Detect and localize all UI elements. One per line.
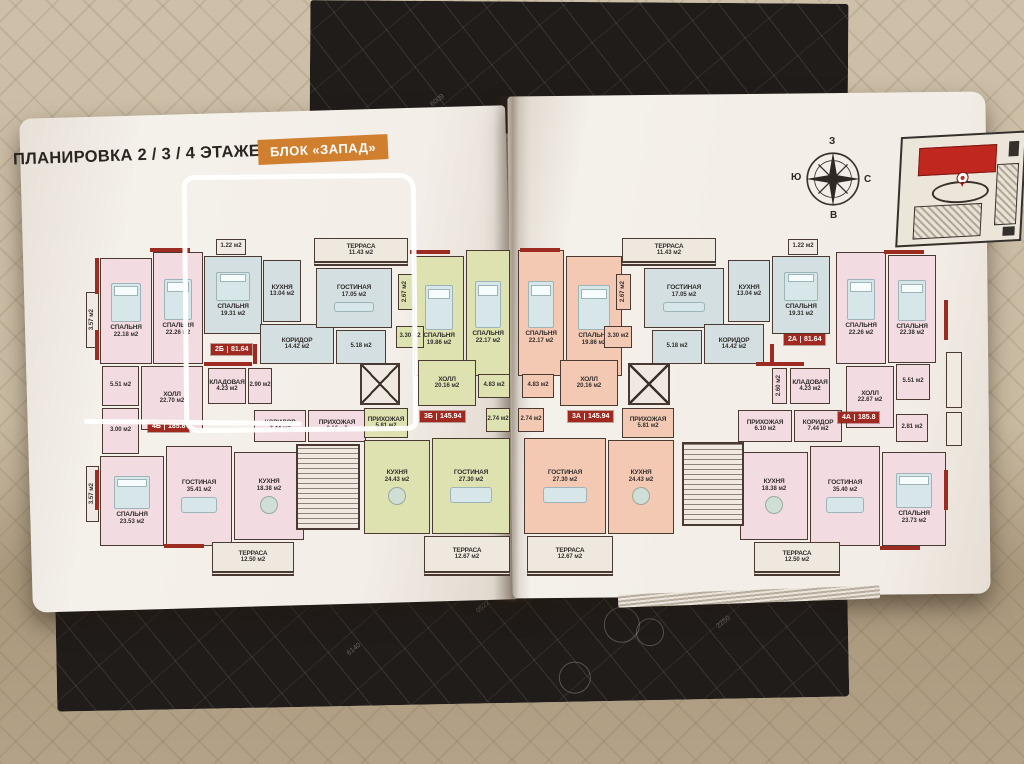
sofa-icon [181, 497, 216, 513]
room-area: 2.67 м2 [620, 281, 627, 302]
room-label: ГОСТИНАЯ27.30 м2 [454, 469, 488, 484]
plan-area: 2.74 м2 [518, 408, 544, 432]
plan-area: 2.67 м2 [616, 274, 631, 310]
plan-area: 2.74 м2 [486, 408, 510, 432]
compass-rose: З Ю С В [798, 136, 868, 226]
room-прихожая: ПРИХОЖАЯ6.10 м2 [738, 410, 792, 442]
room-label: 3.00 м2 [110, 427, 131, 434]
room-area: 3.30 м2 [607, 333, 628, 340]
room-спальня: СПАЛЬНЯ19.86 м2 [414, 256, 464, 376]
room-area: 35.40 м2 [828, 487, 862, 494]
room-name: ГОСТИНАЯ [667, 284, 701, 292]
room-гостиная: ГОСТИНАЯ17.05 м2 [644, 268, 724, 328]
room-label: КУХНЯ24.43 м2 [629, 469, 653, 484]
room-name: КОРИДОР [719, 337, 750, 345]
room-label: СПАЛЬНЯ19.31 м2 [785, 303, 816, 318]
room-label: КУХНЯ24.43 м2 [385, 469, 409, 484]
plan-area: 5.51 м2 [896, 364, 930, 400]
room-name: ХОЛЛ [577, 376, 601, 384]
room-label: КУХНЯ13.04 м2 [737, 284, 761, 299]
stairwell [682, 442, 744, 526]
room-area: 18.38 м2 [257, 486, 281, 493]
room-label: ХОЛЛ20.16 м2 [435, 376, 459, 391]
elevator-shaft [628, 363, 670, 405]
room-area: 12.67 м2 [453, 554, 482, 561]
room-кухня: КУХНЯ24.43 м2 [364, 440, 430, 534]
room-name: СПАЛЬНЯ [116, 511, 147, 519]
room-name: ТЕРРАСА [783, 550, 812, 558]
plan-area: 4.83 м2 [478, 374, 510, 398]
hand-drawn-highlight [182, 173, 419, 433]
plan-area [946, 352, 962, 408]
room-label: СПАЛЬНЯ22.38 м2 [896, 323, 927, 338]
room-label: СПАЛЬНЯ22.26 м2 [845, 322, 876, 337]
apartment-area: 145.94 [440, 413, 461, 420]
room-area: 24.43 м2 [385, 477, 409, 484]
room-label: СПАЛЬНЯ22.17 м2 [472, 330, 503, 345]
room-name: ТЕРРАСА [453, 547, 482, 555]
room-терраса: ТЕРРАСА12.50 м2 [754, 542, 840, 576]
room-label: ТЕРРАСА12.67 м2 [453, 547, 482, 562]
room-area: 11.43 м2 [655, 250, 684, 257]
room-name: СПАЛЬНЯ [845, 322, 876, 330]
room-кладовая: КЛАДОВАЯ4.23 м2 [790, 368, 830, 404]
room-area: 24.43 м2 [629, 477, 653, 484]
siteplan-hatched-area [912, 203, 982, 239]
apartment-area: 81.64 [804, 336, 822, 343]
apartment-id: 3Б [424, 413, 433, 420]
compass-letter-north: С [864, 174, 871, 185]
room-кухня: КУХНЯ13.04 м2 [728, 260, 770, 322]
room-name: КУХНЯ [737, 284, 761, 292]
room-name: СПАЛЬНЯ [785, 303, 816, 311]
plan-area: 5.18 м2 [652, 330, 702, 364]
room-гостиная: ГОСТИНАЯ35.41 м2 [166, 446, 232, 546]
room-area: 27.30 м2 [454, 477, 488, 484]
room-area: 2.74 м2 [520, 416, 541, 423]
room-label: 3.30 м2 [607, 333, 628, 340]
apartment-id: 4А [842, 414, 851, 421]
compass-letter-south: Ю [791, 172, 801, 183]
room-спальня: СПАЛЬНЯ22.17 м2 [466, 250, 510, 376]
room-area: 1.22 м2 [792, 243, 813, 250]
room-area: 18.38 м2 [762, 486, 786, 493]
room-коридор: КОРИДОР7.44 м2 [794, 410, 842, 442]
room-area: 3.00 м2 [110, 427, 131, 434]
room-area: 5.18 м2 [666, 343, 687, 350]
room-кухня: КУХНЯ18.38 м2 [740, 452, 808, 540]
room-label: 1.22 м2 [792, 243, 813, 250]
room-area: 13.04 м2 [737, 291, 761, 298]
plan-area: 3.30 м2 [604, 326, 632, 348]
room-area: 4.23 м2 [792, 386, 827, 393]
room-area: 2.74 м2 [487, 416, 508, 423]
red-wall-accent [95, 470, 99, 510]
room-холл: ХОЛЛ20.16 м2 [560, 360, 618, 406]
room-label: 2.60 м2 [776, 375, 783, 396]
plan-area: 4.83 м2 [522, 374, 554, 398]
plan-area: 2.60 м2 [772, 368, 787, 404]
site-plan-minimap [895, 130, 1024, 247]
compass-letter-west: З [829, 136, 835, 147]
badge-divider [800, 336, 801, 343]
room-спальня: СПАЛЬНЯ19.86 м2 [566, 256, 622, 376]
room-кухня: КУХНЯ24.43 м2 [608, 440, 674, 534]
room-name: ГОСТИНАЯ [548, 469, 582, 477]
room-label: 2.74 м2 [520, 416, 541, 423]
stairwell [296, 444, 360, 530]
bed-icon [475, 281, 501, 328]
room-name: КУХНЯ [257, 478, 281, 486]
room-label: КЛАДОВАЯ4.23 м2 [792, 379, 827, 394]
compass-letter-east: В [830, 210, 837, 221]
room-area: 4.83 м2 [483, 382, 504, 389]
room-area: 2.81 м2 [901, 424, 922, 431]
room-name: ТЕРРАСА [556, 547, 585, 555]
room-name: КУХНЯ [385, 469, 409, 477]
room-спальня: СПАЛЬНЯ22.18 м2 [100, 258, 152, 364]
room-area: 22.17 м2 [472, 338, 503, 345]
room-name: ПРИХОЖАЯ [630, 416, 666, 424]
room-label: ТЕРРАСА12.50 м2 [783, 550, 812, 565]
room-name: СПАЛЬНЯ [472, 330, 503, 338]
room-гостиная: ГОСТИНАЯ27.30 м2 [432, 438, 510, 534]
plan-area: 2.81 м2 [896, 414, 928, 442]
apartment-area: 145.94 [588, 413, 609, 420]
sofa-icon [450, 487, 492, 502]
room-спальня: СПАЛЬНЯ23.73 м2 [882, 452, 946, 546]
bed-icon [784, 272, 817, 301]
room-name: ХОЛЛ [435, 376, 459, 384]
room-area: 5.51 м2 [110, 382, 131, 389]
room-label: 2.74 м2 [487, 416, 508, 423]
room-label: ХОЛЛ22.70 м2 [160, 391, 184, 406]
room-name: СПАЛЬНЯ [896, 323, 927, 331]
room-name: КОРИДОР [803, 419, 834, 427]
red-wall-accent [520, 248, 560, 252]
room-area: 17.05 м2 [667, 292, 701, 299]
red-wall-accent [164, 544, 204, 548]
room-label: КУХНЯ18.38 м2 [762, 478, 786, 493]
room-area: 6.10 м2 [747, 426, 783, 433]
room-label: 2.67 м2 [620, 281, 627, 302]
room-label: ГОСТИНАЯ35.40 м2 [828, 479, 862, 494]
red-wall-accent [944, 470, 948, 510]
table-icon [632, 487, 650, 505]
room-label: 5.18 м2 [666, 343, 687, 350]
room-прихожая: ПРИХОЖАЯ5.81 м2 [622, 408, 674, 438]
room-area: 23.53 м2 [116, 519, 147, 526]
room-area: 2.60 м2 [776, 375, 783, 396]
room-label: КУХНЯ18.38 м2 [257, 478, 281, 493]
apartment-id: 2А [788, 336, 797, 343]
table-icon [388, 487, 406, 505]
red-wall-accent [884, 250, 924, 254]
bed-icon [578, 285, 610, 329]
room-name: КЛАДОВАЯ [792, 379, 827, 387]
room-area: 14.42 м2 [719, 344, 750, 351]
room-label: ХОЛЛ22.67 м2 [858, 390, 882, 405]
room-area: 20.16 м2 [435, 383, 459, 390]
plan-area [946, 412, 962, 446]
room-name: КУХНЯ [629, 469, 653, 477]
bed-icon [114, 476, 151, 510]
badge-divider [854, 414, 855, 421]
room-label: ГОСТИНАЯ17.05 м2 [667, 284, 701, 299]
bed-icon [898, 280, 926, 320]
apartment-badge-3А: 3А145.94 [568, 411, 613, 422]
apartment-badge-2А: 2А81.64 [784, 334, 825, 345]
room-name: СПАЛЬНЯ [525, 330, 556, 338]
room-area: 12.67 м2 [556, 554, 585, 561]
room-коридор: КОРИДОР14.42 м2 [704, 324, 764, 364]
room-area: 5.81 м2 [630, 423, 666, 430]
room-label: СПАЛЬНЯ19.86 м2 [423, 332, 454, 347]
room-гостиная: ГОСТИНАЯ35.40 м2 [810, 446, 880, 546]
plan-area: 1.22 м2 [788, 239, 818, 255]
floor-plan: СПАЛЬНЯ22.18 м2СПАЛЬНЯ22.26 м2СПАЛЬНЯ19.… [0, 0, 1024, 764]
room-label: 5.51 м2 [110, 382, 131, 389]
room-label: ГОСТИНАЯ35.41 м2 [182, 479, 216, 494]
siteplan-block [1009, 141, 1020, 156]
room-area: 22.38 м2 [896, 330, 927, 337]
room-label: ТЕРРАСА12.67 м2 [556, 547, 585, 562]
badge-divider [436, 413, 437, 420]
siteplan-highlighted-building [918, 144, 997, 177]
room-терраса: ТЕРРАСА11.43 м2 [622, 238, 716, 266]
room-label: 4.83 м2 [527, 382, 548, 389]
table-icon [765, 496, 783, 514]
room-name: ГОСТИНАЯ [454, 469, 488, 477]
room-area: 22.17 м2 [525, 338, 556, 345]
room-area: 3.57 м2 [89, 309, 96, 330]
room-label: 5.51 м2 [902, 378, 923, 385]
room-холл: ХОЛЛ20.16 м2 [418, 360, 476, 406]
badge-divider [584, 413, 585, 420]
room-терраса: ТЕРРАСА12.67 м2 [424, 536, 510, 576]
bed-icon [111, 283, 141, 322]
room-area: 22.18 м2 [110, 332, 141, 339]
red-wall-accent [880, 546, 920, 550]
siteplan-hatched-area [994, 163, 1019, 226]
room-терраса: ТЕРРАСА12.67 м2 [527, 536, 613, 576]
room-name: ТЕРРАСА [239, 550, 268, 558]
bed-icon [425, 285, 454, 329]
room-area: 12.50 м2 [239, 557, 268, 564]
room-кухня: КУХНЯ18.38 м2 [234, 452, 304, 540]
room-label: 3.57 м2 [89, 309, 96, 330]
room-label: КОРИДОР7.44 м2 [803, 419, 834, 434]
room-терраса: ТЕРРАСА12.50 м2 [212, 542, 294, 576]
room-name: ХОЛЛ [160, 391, 184, 399]
room-area: 4.83 м2 [527, 382, 548, 389]
room-name: СПАЛЬНЯ [423, 332, 454, 340]
room-label: ТЕРРАСА11.43 м2 [655, 243, 684, 258]
room-label: 2.81 м2 [901, 424, 922, 431]
room-area: 19.31 м2 [785, 311, 816, 318]
room-label: ПРИХОЖАЯ5.81 м2 [630, 416, 666, 431]
room-area: 27.30 м2 [548, 477, 582, 484]
room-label: СПАЛЬНЯ23.73 м2 [898, 510, 929, 525]
siteplan-block [1002, 226, 1015, 235]
room-спальня: СПАЛЬНЯ22.38 м2 [888, 255, 936, 363]
bed-icon [896, 473, 933, 508]
apartment-id: 3А [572, 413, 581, 420]
room-name: ГОСТИНАЯ [828, 479, 862, 487]
room-name: КУХНЯ [762, 478, 786, 486]
sofa-icon [543, 487, 587, 502]
room-спальня: СПАЛЬНЯ23.53 м2 [100, 456, 164, 546]
room-area: 22.70 м2 [160, 398, 184, 405]
sofa-icon [663, 302, 706, 312]
red-wall-accent [756, 362, 804, 366]
room-area: 19.86 м2 [423, 340, 454, 347]
room-name: СПАЛЬНЯ [110, 324, 141, 332]
room-label: КОРИДОР14.42 м2 [719, 337, 750, 352]
room-area: 20.16 м2 [577, 383, 601, 390]
room-area: 35.41 м2 [182, 487, 216, 494]
room-name: СПАЛЬНЯ [898, 510, 929, 518]
bed-icon [528, 281, 555, 328]
room-label: ТЕРРАСА12.50 м2 [239, 550, 268, 565]
room-name: ХОЛЛ [858, 390, 882, 398]
room-area: 23.73 м2 [898, 518, 929, 525]
room-label: ПРИХОЖАЯ6.10 м2 [747, 419, 783, 434]
plan-area: 5.51 м2 [102, 366, 139, 406]
plan-area: 3.00 м2 [102, 408, 139, 454]
red-wall-accent [95, 258, 99, 294]
room-name: ПРИХОЖАЯ [747, 419, 783, 427]
room-спальня: СПАЛЬНЯ19.31 м2 [772, 256, 830, 334]
room-label: ГОСТИНАЯ27.30 м2 [548, 469, 582, 484]
room-label: СПАЛЬНЯ23.53 м2 [116, 511, 147, 526]
apartment-badge-3Б: 3Б145.94 [420, 411, 465, 422]
room-name: ГОСТИНАЯ [182, 479, 216, 487]
compass-star-icon [805, 151, 861, 207]
brochure-photo: 6009 0522 6140 2250 ПЛАНИРОВКА 2 / 3 / 4… [0, 0, 1024, 764]
bed-icon [847, 279, 876, 321]
apartment-area: 185.8 [858, 414, 876, 421]
room-гостиная: ГОСТИНАЯ27.30 м2 [524, 438, 606, 534]
room-area: 12.50 м2 [783, 557, 812, 564]
table-icon [260, 496, 278, 514]
room-area: 22.26 м2 [845, 330, 876, 337]
room-name: ТЕРРАСА [655, 243, 684, 251]
room-label: 4.83 м2 [483, 382, 504, 389]
red-wall-accent [944, 300, 948, 340]
room-спальня: СПАЛЬНЯ22.17 м2 [518, 250, 564, 376]
apartment-badge-4А: 4А185.8 [838, 412, 879, 423]
room-area: 7.44 м2 [803, 426, 834, 433]
sofa-icon [826, 497, 863, 513]
red-wall-accent [770, 344, 774, 364]
room-label: СПАЛЬНЯ22.17 м2 [525, 330, 556, 345]
room-label: СПАЛЬНЯ22.18 м2 [110, 324, 141, 339]
red-wall-accent [95, 330, 99, 360]
room-area: 22.67 м2 [858, 397, 882, 404]
room-label: ХОЛЛ20.16 м2 [577, 376, 601, 391]
room-спальня: СПАЛЬНЯ22.26 м2 [836, 252, 886, 364]
room-area: 5.51 м2 [902, 378, 923, 385]
